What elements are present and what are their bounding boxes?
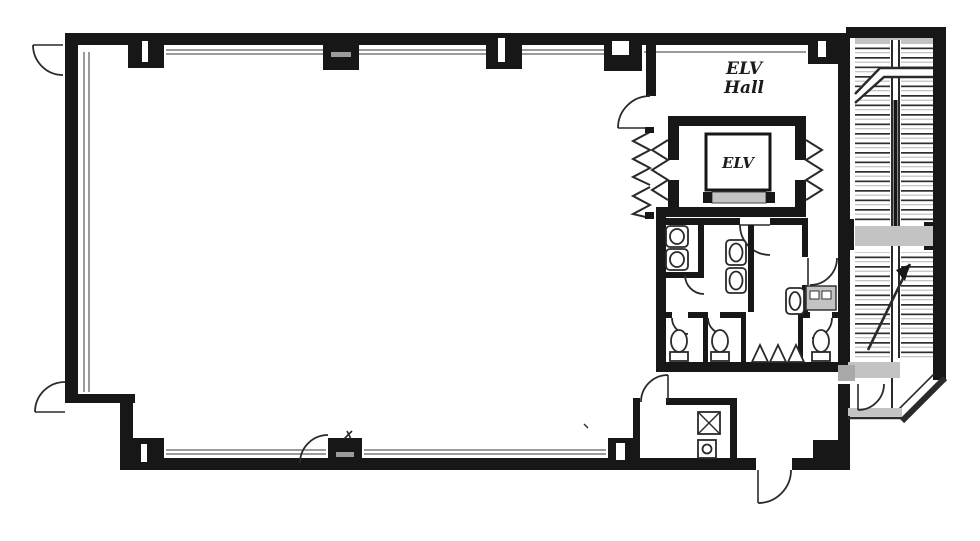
- shaft-left-wall-b: [668, 180, 679, 217]
- elevator-sill-nub-right: [766, 192, 775, 203]
- column-top-5-slot: [818, 41, 826, 57]
- hall-door-arc: [618, 96, 650, 128]
- window-bands: [84, 50, 806, 454]
- wc-bowl-icon: [813, 330, 829, 352]
- washbasin-pair-west: [666, 226, 688, 270]
- elv-hall-label-line2: Hall: [723, 78, 765, 98]
- stall-divider-2: [741, 312, 746, 368]
- column-bottom-2-slot: [336, 452, 354, 457]
- wc-tank-icon: [670, 352, 688, 361]
- column-top-2-slot: [331, 52, 351, 57]
- partition-cap-bottom: [645, 212, 654, 219]
- pantry-room: [633, 375, 737, 460]
- stall-front-e: [832, 312, 842, 318]
- pantry-door-arc: [641, 375, 668, 402]
- column-top-1-slot: [142, 41, 148, 62]
- sink-basin: [822, 291, 831, 299]
- stair-bottom-landing: [848, 362, 900, 378]
- washbasin-bowl-icon: [790, 292, 801, 310]
- sink-basin: [810, 291, 819, 299]
- restroom-south-wall: [656, 362, 850, 372]
- washbasin-pair-center: [726, 240, 746, 293]
- wc-bowl-icon: [671, 330, 687, 352]
- wc-tank-icon: [711, 352, 729, 361]
- column-top-4-notch: [612, 41, 629, 55]
- stall-front-a: [656, 312, 672, 318]
- column-bottom-3-slot: [616, 443, 625, 460]
- sink-room-door-arc: [810, 258, 837, 285]
- stall-divider-1: [703, 312, 708, 368]
- vanity-partition-h: [656, 272, 704, 278]
- partition-cap-top: [645, 127, 654, 133]
- restroom-north-wall-b: [770, 218, 804, 225]
- corridor-partition-v-a: [802, 218, 808, 257]
- stair-mid-landing: [855, 226, 933, 246]
- exterior-walls: [65, 27, 946, 470]
- exterior-door-leftstep-arc: [35, 382, 65, 412]
- vanity-partition-v: [698, 225, 704, 272]
- elv-hall-label-line1: ELV: [725, 59, 764, 79]
- scan-marks: [344, 424, 588, 439]
- toilets: [670, 330, 830, 361]
- shaft-accordion-left: [652, 140, 668, 200]
- restroom-west-wall: [656, 215, 666, 368]
- urinals: [752, 345, 804, 362]
- hall-west-wall-upper: [646, 45, 656, 96]
- shaft-right-wall-b: [795, 180, 806, 217]
- top-wall: [65, 33, 850, 45]
- urinal-icon: [752, 345, 768, 362]
- folding-partition-upper: [633, 132, 650, 185]
- pantry-fixtures: [698, 412, 720, 458]
- wc-tank-icon: [812, 352, 830, 361]
- structural-columns: [128, 27, 946, 470]
- shaft-right-wall-a: [795, 116, 806, 160]
- stair-stringer-core: [894, 100, 898, 230]
- restroom-north-wall-a: [662, 218, 740, 225]
- shaft-left-wall-a: [668, 116, 679, 160]
- sink-counter-east: [786, 286, 836, 314]
- speck: [584, 424, 588, 428]
- urinal-icon: [770, 345, 786, 362]
- center-partition-v: [748, 225, 754, 312]
- left-wall: [65, 33, 78, 402]
- elevator-car-label: ELV: [721, 154, 755, 172]
- shaft-top-wall: [668, 116, 806, 126]
- stair-passage-hatch: [838, 365, 855, 381]
- restroom-block: [656, 215, 850, 372]
- stair-right-wall: [933, 27, 946, 380]
- washbasin-bowl-icon: [730, 272, 743, 290]
- pantry-north-wall: [666, 398, 737, 405]
- elevator-sill-nub-left: [703, 192, 712, 203]
- shaft-accordion-right: [806, 140, 822, 200]
- column-bottom-1-slot: [141, 444, 147, 462]
- elevator-door-sill: [712, 192, 766, 203]
- washbasin-bowl-icon: [730, 244, 743, 262]
- elevator-shaft: ELV: [652, 116, 822, 217]
- stair-bottom-strip: [848, 408, 902, 416]
- column-bottom-4: [813, 440, 848, 470]
- pantry-east-wall: [730, 398, 737, 460]
- floor-plan-drawing: ELV Hall ELV: [0, 0, 980, 541]
- pantry-drain-icon: [703, 445, 712, 454]
- stair-exit-door-arc: [858, 384, 884, 410]
- washbasin-bowl-icon: [670, 252, 684, 267]
- bottom-wall-west: [120, 458, 756, 470]
- wc-bowl-icon: [712, 330, 728, 352]
- floor-plan-page: ELV Hall ELV: [0, 0, 980, 541]
- column-stair-mid-west: [838, 219, 854, 250]
- exterior-door-bottom-arc: [758, 470, 791, 503]
- column-top-3-slot: [498, 38, 505, 62]
- pantry-west-wall: [633, 398, 640, 460]
- washbasin-bowl-icon: [670, 229, 684, 244]
- exterior-door-topleft-arc: [33, 45, 63, 75]
